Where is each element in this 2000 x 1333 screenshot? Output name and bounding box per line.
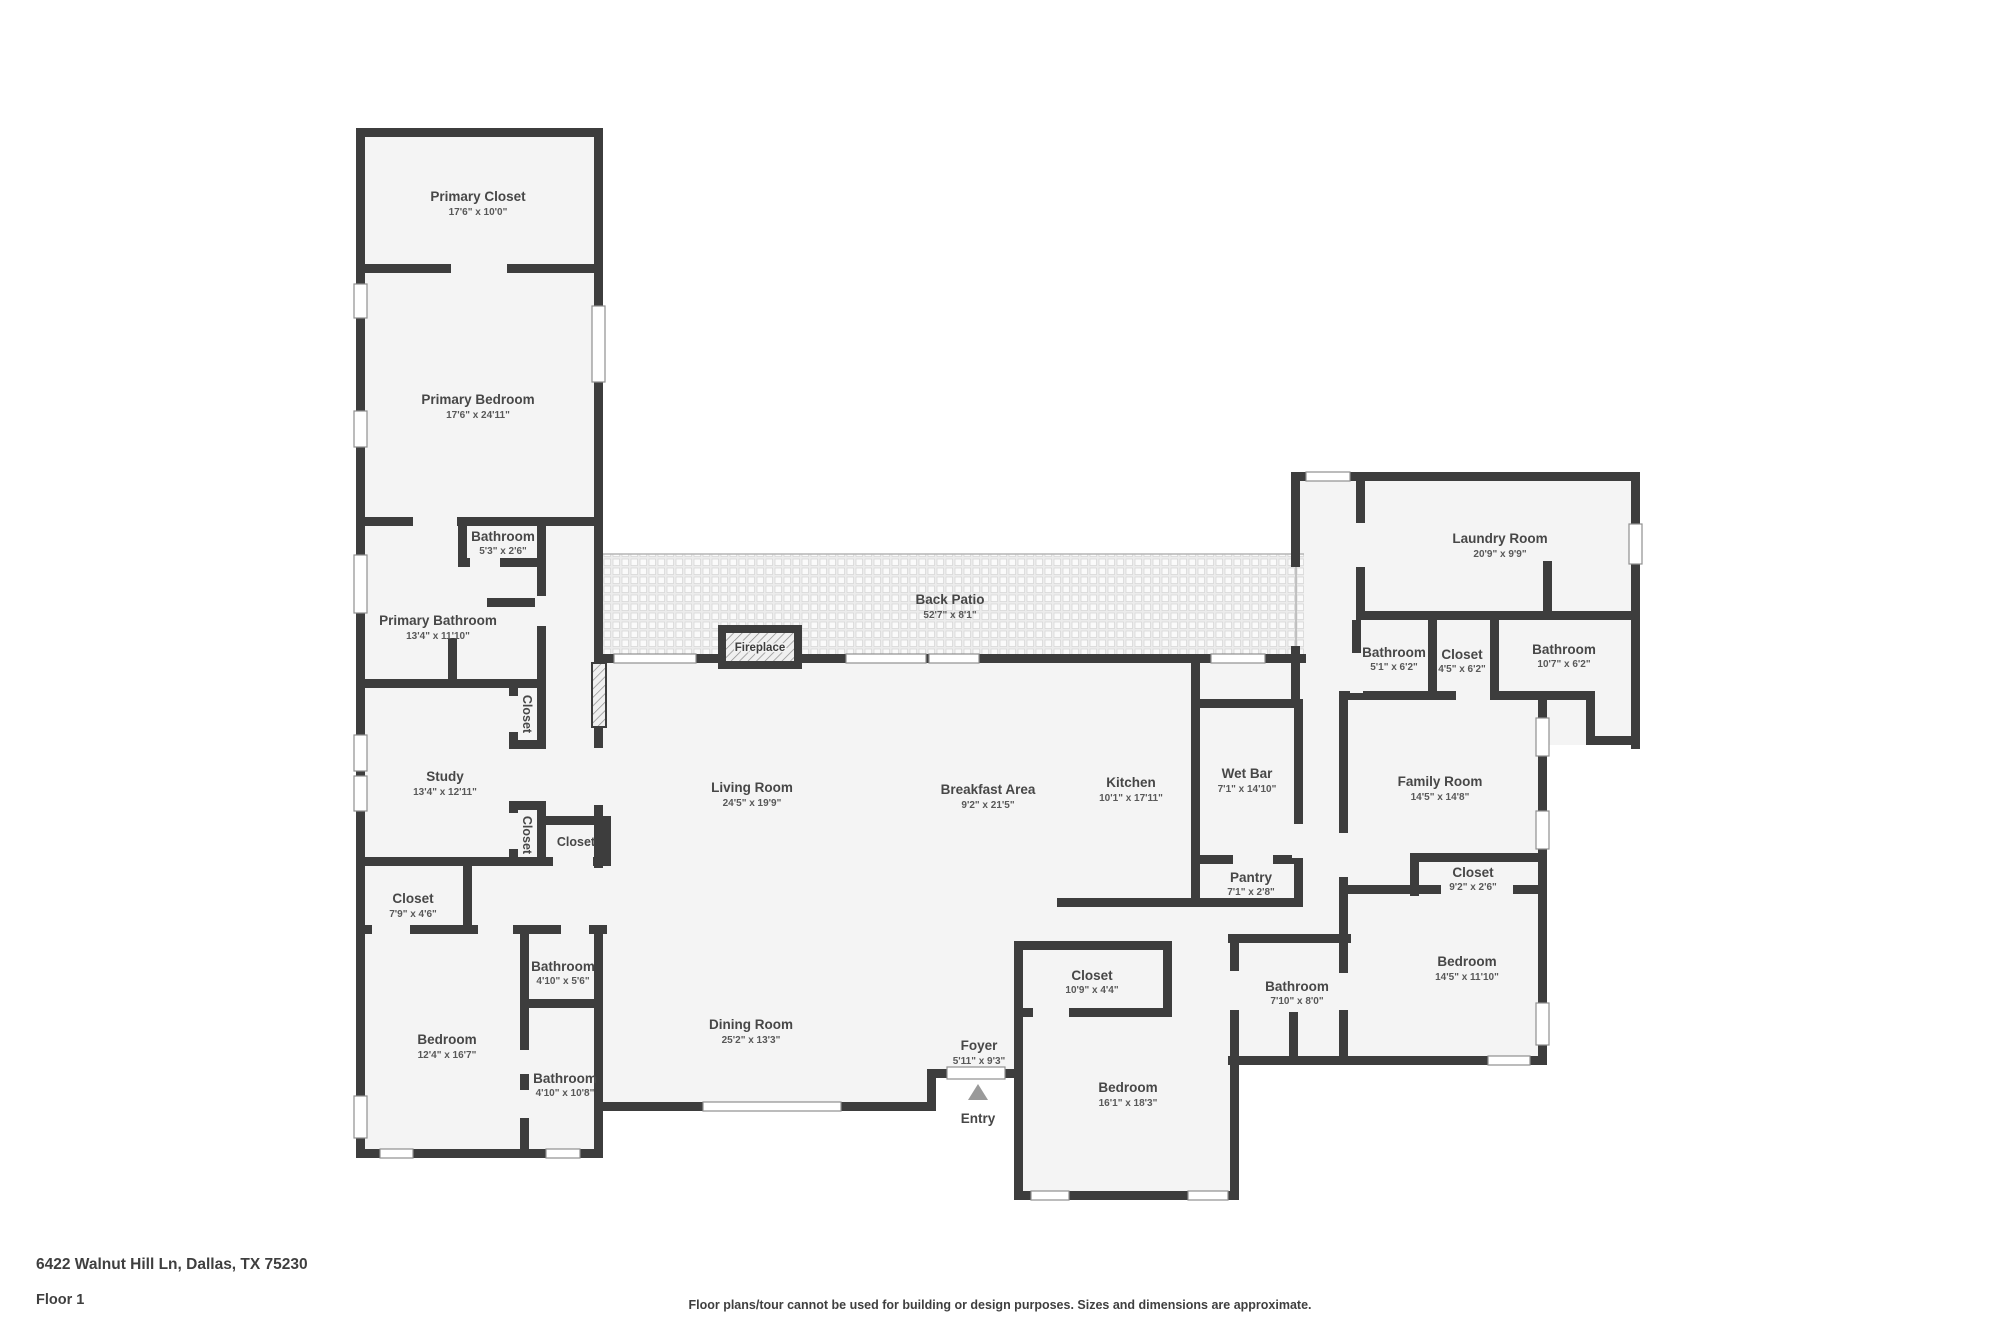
footer-address: 6422 Walnut Hill Ln, Dallas, TX 75230 [36,1256,308,1274]
label-bedroom-right: Bedroom [1437,954,1496,969]
svg-text:25'2" x 13'3": 25'2" x 13'3" [722,1035,781,1046]
label-bathroom-primary-small: Bathroom [471,529,535,544]
fireplace: Fireplace [722,629,798,665]
chimney-column [592,663,606,727]
svg-text:10'9" x 4'4": 10'9" x 4'4" [1065,985,1118,996]
svg-text:9'2" x 2'6": 9'2" x 2'6" [1449,882,1497,893]
svg-text:9'2" x 21'5": 9'2" x 21'5" [961,800,1014,811]
svg-text:17'6" x 10'0": 17'6" x 10'0" [449,207,508,218]
label-kitchen: Kitchen [1106,775,1156,790]
label-primary-bathroom: Primary Bathroom [379,613,497,628]
label-bathroom-right-1: Bathroom [1362,645,1426,660]
svg-text:4'5" x 6'2": 4'5" x 6'2" [1438,664,1486,675]
svg-text:17'6" x 24'11": 17'6" x 24'11" [446,410,510,421]
label-bathroom-hall: Bathroom [1265,979,1329,994]
label-primary-bedroom: Primary Bedroom [421,392,534,407]
label-study: Study [426,769,464,784]
label-dining-room: Dining Room [709,1017,793,1032]
svg-text:7'10" x 8'0": 7'10" x 8'0" [1270,996,1323,1007]
svg-text:14'5" x 11'10": 14'5" x 11'10" [1435,972,1499,983]
floorplan-canvas: Fireplace Entry Primary Closet 17'6" x 1… [0,0,2000,1333]
label-foyer: Foyer [961,1038,999,1053]
svg-text:20'9" x 9'9": 20'9" x 9'9" [1473,549,1526,560]
svg-text:7'1" x 2'8": 7'1" x 2'8" [1227,887,1275,898]
label-family-room: Family Room [1398,774,1483,789]
svg-text:13'4" x 11'10": 13'4" x 11'10" [406,631,470,642]
label-closet-study-lower: Closet [520,816,534,855]
footer-disclaimer: Floor plans/tour cannot be used for buil… [0,1298,2000,1312]
label-bedroom-center: Bedroom [1098,1080,1157,1095]
fireplace-label: Fireplace [735,642,786,654]
label-closet-hall: Closet [392,891,434,906]
svg-text:5'3" x 2'6": 5'3" x 2'6" [479,546,527,557]
label-breakfast-area: Breakfast Area [941,782,1036,797]
svg-text:12'4" x 16'7": 12'4" x 16'7" [418,1050,477,1061]
svg-text:5'11" x 9'3": 5'11" x 9'3" [953,1056,1006,1067]
label-back-patio: Back Patio [915,592,984,607]
svg-text:10'7" x 6'2": 10'7" x 6'2" [1537,659,1590,670]
svg-text:5'1" x 6'2": 5'1" x 6'2" [1370,662,1418,673]
label-primary-closet: Primary Closet [430,189,526,204]
svg-text:24'5" x 19'9": 24'5" x 19'9" [723,798,782,809]
label-living-room: Living Room [711,780,793,795]
entry-arrow-icon [968,1084,988,1100]
svg-text:13'4" x 12'11": 13'4" x 12'11" [413,787,477,798]
label-closet-study-side: Closet [557,835,596,849]
label-laundry-room: Laundry Room [1452,531,1547,546]
svg-text:4'10" x 10'8": 4'10" x 10'8" [536,1088,595,1099]
label-closet-right-1: Closet [1441,647,1483,662]
svg-text:7'1" x 14'10": 7'1" x 14'10" [1218,784,1277,795]
floorplan-page: Fireplace Entry Primary Closet 17'6" x 1… [0,0,2000,1333]
svg-text:7'9" x 4'6": 7'9" x 4'6" [389,909,437,920]
label-bathroom-right-2: Bathroom [1532,642,1596,657]
svg-text:4'10" x 5'6": 4'10" x 5'6" [536,976,589,987]
svg-text:52'7" x 8'1": 52'7" x 8'1" [923,610,976,621]
entry-label: Entry [961,1111,996,1126]
label-pantry: Pantry [1230,870,1273,885]
svg-text:16'1" x 18'3": 16'1" x 18'3" [1099,1098,1158,1109]
label-bedroom-left: Bedroom [417,1032,476,1047]
svg-text:10'1" x 17'11": 10'1" x 17'11" [1099,793,1163,804]
label-closet-bedroom-center: Closet [1071,968,1113,983]
label-bathroom-left-upper: Bathroom [531,959,595,974]
label-wet-bar: Wet Bar [1222,766,1274,781]
svg-text:14'5" x 14'8": 14'5" x 14'8" [1411,792,1470,803]
label-bathroom-left-lower: Bathroom [533,1071,597,1086]
label-closet-family: Closet [1452,865,1494,880]
label-closet-study-upper: Closet [520,695,534,734]
